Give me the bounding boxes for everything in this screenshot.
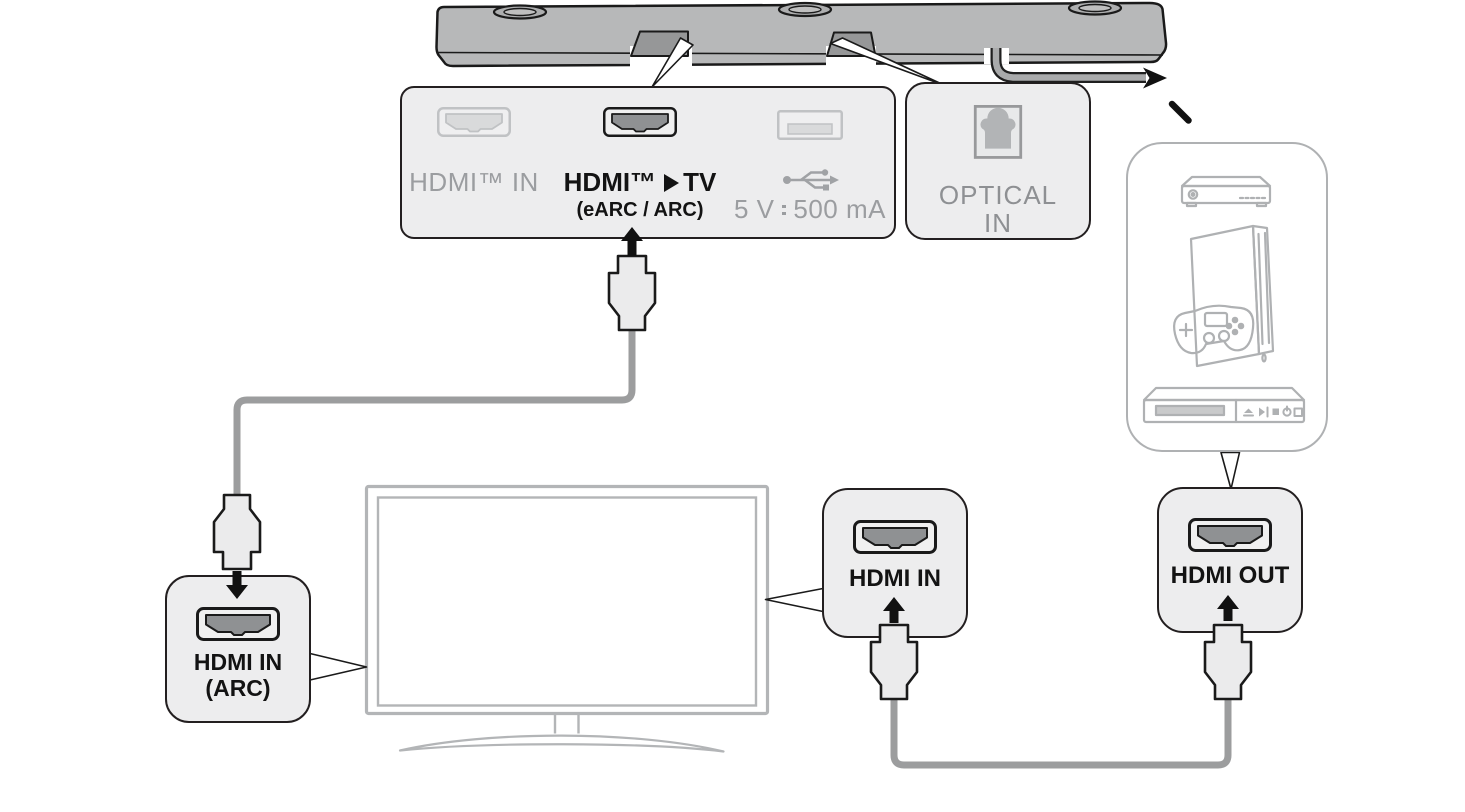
disc-player-icon [1144, 388, 1304, 422]
tv-icon [367, 487, 768, 752]
source-devices-art [1128, 144, 1325, 449]
tv-hdmi-in-label: HDMI IN [849, 565, 941, 593]
hdmi-port-icon [603, 107, 677, 137]
game-console-icon [1174, 226, 1273, 366]
source-hdmi-out-panel: HDMI OUT [1157, 487, 1303, 633]
port-hdmi-tv-earc: HDMI™ TV (eARC / ARC) [562, 88, 718, 237]
usb-port-icon [777, 110, 843, 140]
soundbar-ports-panel: HDMI™ IN HDMI™ TV (eARC / ARC) [400, 86, 896, 239]
callout-pointer [310, 654, 367, 681]
optical-port-icon [972, 105, 1024, 159]
source-hdmi-out-label: HDMI OUT [1171, 562, 1290, 590]
optical-in-panel: OPTICAL IN [905, 82, 1091, 240]
hdmi-port-icon [196, 607, 280, 641]
hdmi-tv-port-sublabel: (eARC / ARC) [562, 199, 718, 222]
tv-stand-base [400, 736, 724, 752]
set-top-box-icon [1182, 177, 1270, 206]
port-usb: 5 V 500 mA [734, 88, 886, 237]
hdmi-in-port-label: HDMI™ IN [404, 167, 544, 198]
callout-pointer [766, 589, 824, 612]
connection-diagram: HDMI™ IN HDMI™ TV (eARC / ARC) [0, 0, 1465, 812]
port-hdmi-in: HDMI™ IN [404, 88, 544, 237]
source-devices-box [1126, 142, 1328, 452]
usb-power-rating: 5 V 500 mA [734, 194, 886, 225]
tv-arc-label-line1: HDMI IN [194, 650, 282, 676]
tv-stand-neck [555, 715, 579, 734]
tv-hdmi-in-panel: HDMI IN [822, 488, 968, 638]
direct-current-icon [782, 205, 787, 215]
right-triangle-icon [664, 174, 679, 192]
hdmi-port-icon [853, 520, 937, 554]
callout-pointer [1221, 453, 1240, 490]
optical-in-label-line2: IN [984, 209, 1012, 238]
hdmi-port-icon [1188, 518, 1272, 552]
hdmi-tv-label-prefix: HDMI™ [564, 167, 656, 198]
hdmi-tv-label-suffix: TV [683, 167, 716, 198]
optical-in-label-line1: OPTICAL [939, 181, 1057, 210]
soundbar-icon [437, 2, 1167, 69]
tv-hdmi-arc-panel: HDMI IN (ARC) [165, 575, 311, 723]
tv-arc-label-line2: (ARC) [205, 676, 270, 702]
usb-rating-amps: 500 mA [793, 194, 886, 225]
usb-trident-icon [781, 166, 839, 192]
usb-rating-volts: 5 V [734, 194, 775, 225]
hdmi-tv-port-label: HDMI™ TV [562, 167, 718, 198]
hdmi-port-icon [437, 107, 511, 137]
